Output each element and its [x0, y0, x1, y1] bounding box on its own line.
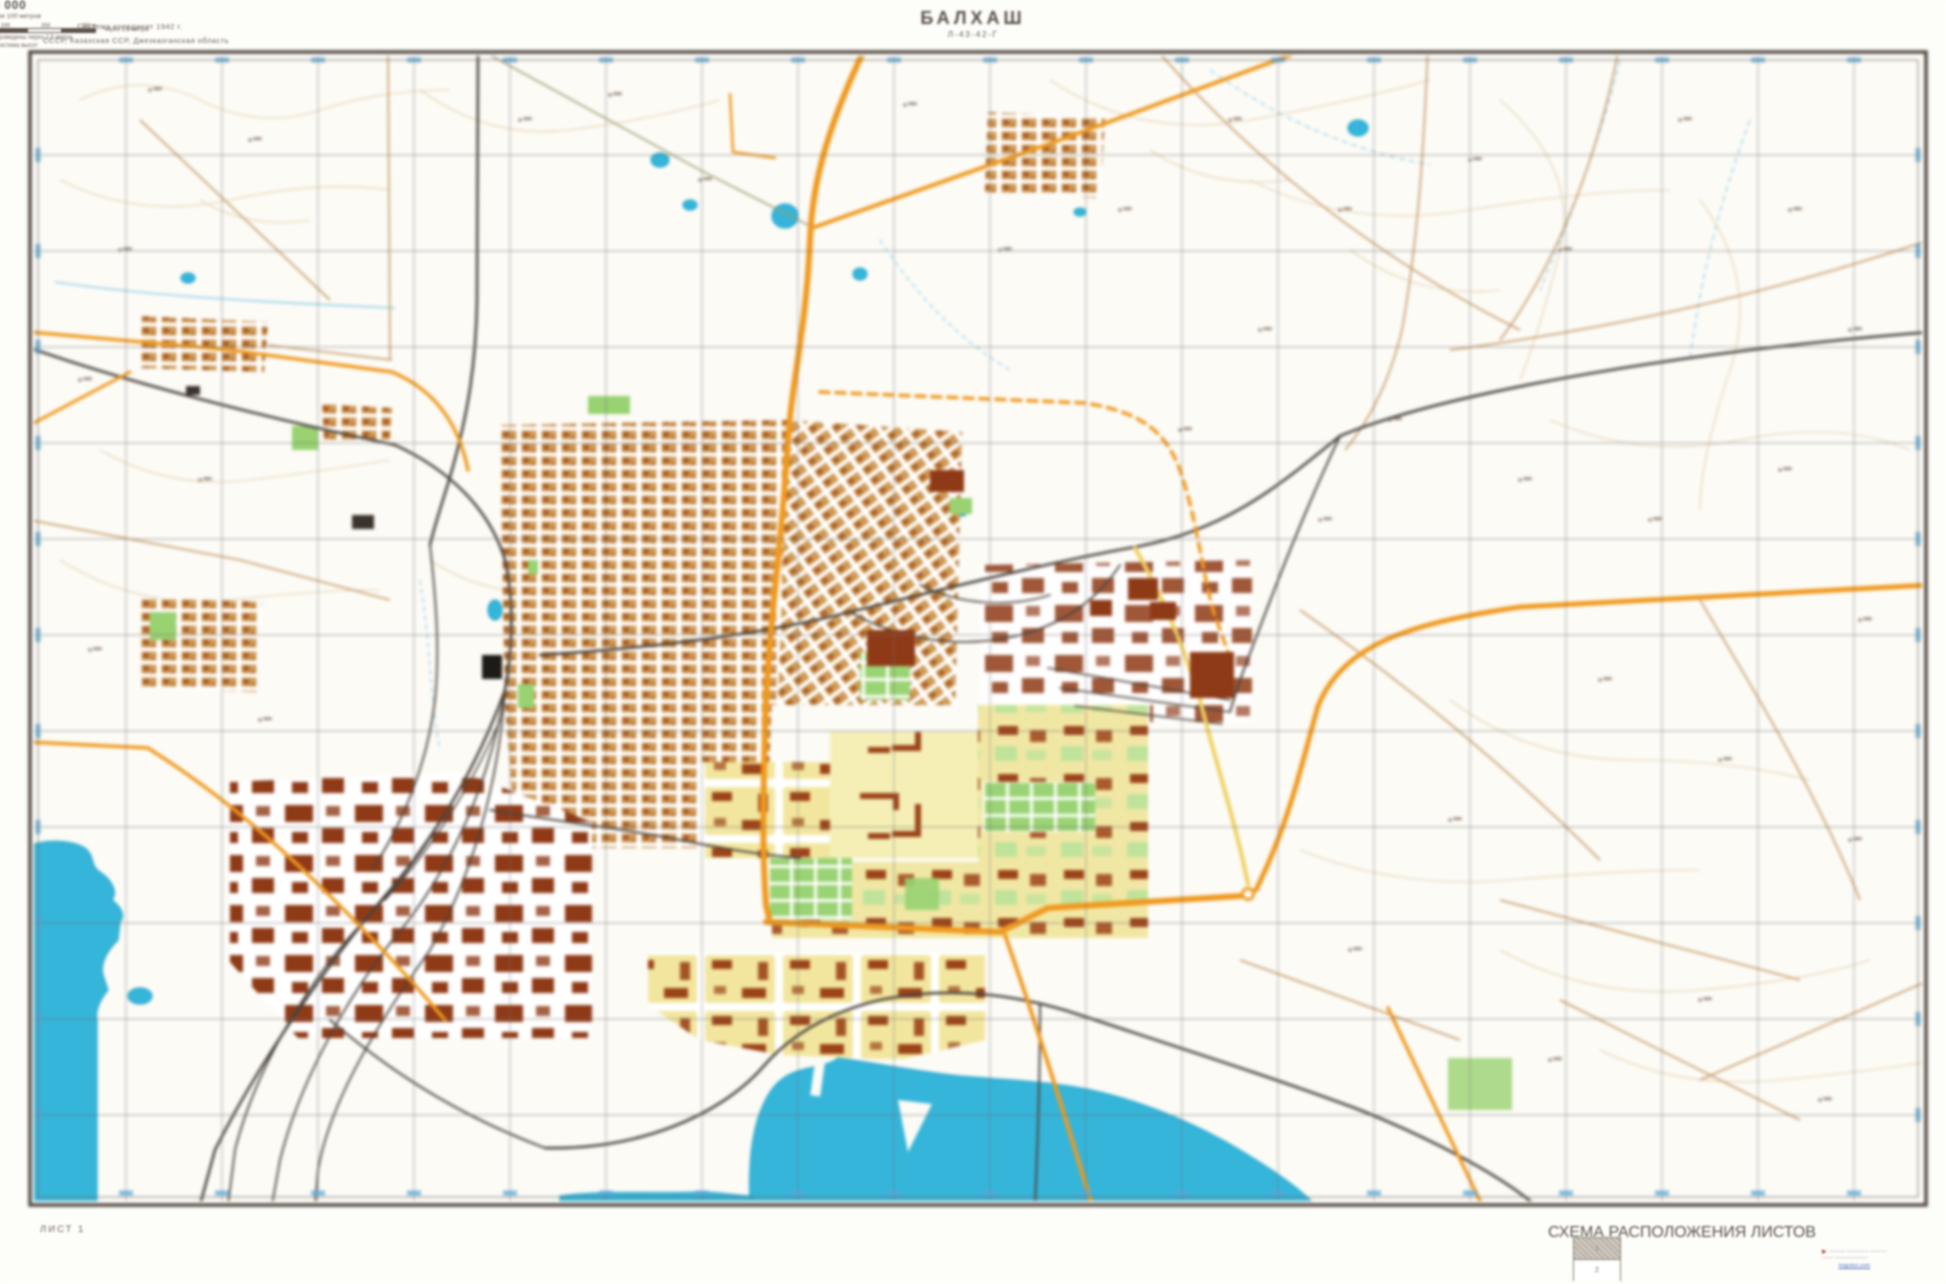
- watermark-site-link[interactable]: mapstor.com: [1822, 1263, 1887, 1270]
- district-superblock: [830, 732, 978, 858]
- orchard-grid: [983, 782, 1095, 832]
- scale-bar: 100 0 100 200 300 м: [0, 23, 96, 33]
- watermark-caption-1: ——— ———— ———: [1829, 1249, 1887, 1255]
- roundabout: [1243, 889, 1254, 900]
- sheet-number-label: ЛИСТ 1: [40, 1224, 85, 1235]
- district-old-town-grid: [500, 420, 788, 705]
- scheme-sheet-1-cell: 1: [1574, 1238, 1620, 1259]
- map-sheet: Система координат 1942 г. СССР, Казахска…: [0, 0, 1946, 1284]
- railway-station-building: [482, 655, 502, 679]
- pond: [128, 988, 152, 1004]
- scale-block: 1:10 000 в 1 сантиметре 100 метров Сплош…: [0, 0, 973, 49]
- city-park: [770, 858, 852, 920]
- watermark: ▸——— ———— ——— —— —————— mapstor.com: [1822, 1248, 1887, 1269]
- scale-value: 1:10 000: [0, 0, 973, 12]
- height-system-note: Балтийская система высот: [0, 43, 973, 49]
- watermark-caption-2: —— ——————: [1822, 1255, 1868, 1261]
- scale-flank-right: через 2,5 метра: [104, 27, 148, 33]
- contour-interval-note: Сплошные горизонтали проведены через 2,5…: [0, 35, 973, 41]
- topographic-map-canvas: [0, 0, 1946, 1284]
- scheme-sheet-2-cell: 2: [1574, 1259, 1620, 1281]
- sheet-scheme-diagram: 1 2: [1573, 1237, 1621, 1281]
- scale-note: в 1 сантиметре 100 метров: [0, 13, 973, 20]
- district-industrial-sw: [230, 772, 592, 1038]
